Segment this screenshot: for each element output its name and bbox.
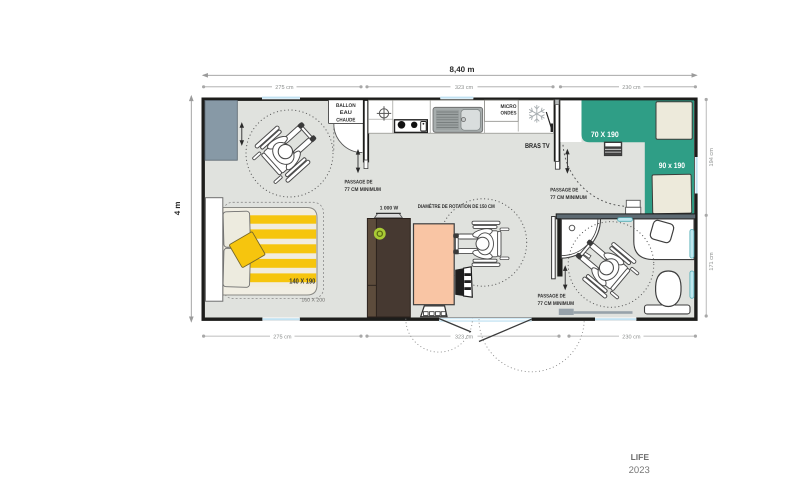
svg-text:275 cm: 275 cm xyxy=(275,85,294,91)
svg-text:323 cm: 323 cm xyxy=(455,85,474,91)
svg-text:DIAMÈTRE DE ROTATION DE 150 CM: DIAMÈTRE DE ROTATION DE 150 CM xyxy=(418,203,495,210)
svg-text:77 CM MINIMUM: 77 CM MINIMUM xyxy=(345,187,382,193)
svg-text:1 000 W: 1 000 W xyxy=(380,205,399,211)
svg-text:PASSAGE DE: PASSAGE DE xyxy=(345,179,373,185)
svg-text:8,40 m: 8,40 m xyxy=(450,65,475,74)
svg-text:PASSAGE DE: PASSAGE DE xyxy=(550,187,578,193)
svg-text:4 m: 4 m xyxy=(173,202,182,216)
svg-text:BRAS TV: BRAS TV xyxy=(525,143,550,150)
svg-text:230 cm: 230 cm xyxy=(622,335,641,341)
svg-text:77 CM MINIMUM: 77 CM MINIMUM xyxy=(538,301,575,307)
svg-text:EAU: EAU xyxy=(340,110,352,116)
svg-text:77 CM MINIMUM: 77 CM MINIMUM xyxy=(550,195,587,201)
svg-text:70 X 190: 70 X 190 xyxy=(591,130,619,139)
svg-text:160 X 200: 160 X 200 xyxy=(301,297,325,303)
svg-text:140 X 190: 140 X 190 xyxy=(289,276,315,285)
svg-text:90 x 190: 90 x 190 xyxy=(659,161,686,170)
svg-text:CHAUDE: CHAUDE xyxy=(336,117,356,123)
svg-text:2023: 2023 xyxy=(629,465,650,476)
svg-text:MICRO: MICRO xyxy=(501,104,517,110)
svg-text:275 cm: 275 cm xyxy=(273,335,292,341)
svg-text:ONDES: ONDES xyxy=(501,111,517,117)
svg-text:LIFE: LIFE xyxy=(631,452,650,462)
svg-text:323 cm: 323 cm xyxy=(455,335,474,341)
svg-text:194 cm: 194 cm xyxy=(709,148,715,167)
svg-text:230 cm: 230 cm xyxy=(622,85,641,91)
svg-text:PASSAGE DE: PASSAGE DE xyxy=(538,294,566,300)
svg-text:171 cm: 171 cm xyxy=(709,252,715,271)
svg-text:BALLON: BALLON xyxy=(336,103,356,109)
